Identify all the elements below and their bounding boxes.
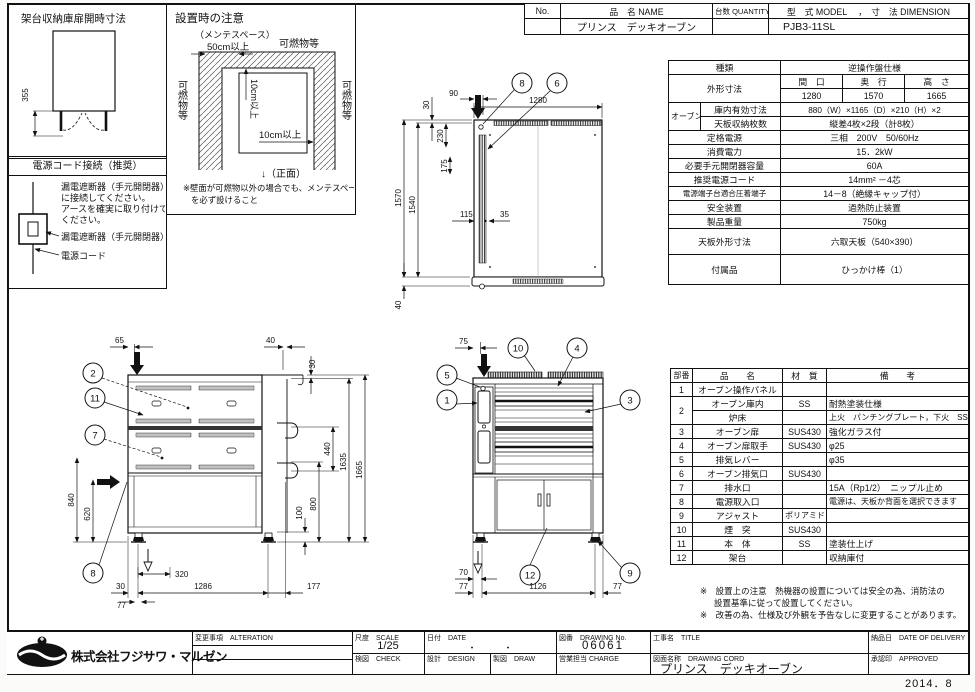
dim-rear-body-h: 1635 xyxy=(339,453,348,471)
dim-50cm: 50cm以上 xyxy=(207,42,250,53)
dim-rear-offset: 320 xyxy=(175,570,189,579)
balloon-3: 3 xyxy=(627,396,632,407)
spec-tray-value: 縦差4枚×2段（計8枚） xyxy=(781,117,969,131)
front-view-drawing: 10 4 5 1 3 12 9 75 70 77 1126 77 xyxy=(425,322,670,627)
balloon-10: 10 xyxy=(513,344,524,355)
dim-10cm-side: 10cm以上 xyxy=(249,79,259,119)
spec-accessory-value: ひっかけ棒（1） xyxy=(781,255,969,285)
header-name-label: 品 名 NAME xyxy=(561,4,713,19)
header-qty-label: 台数 QUANTITY xyxy=(713,4,769,19)
header-model-label: 型 式 MODEL ， 寸 法 DIMENSION xyxy=(769,4,969,19)
chimney-strip xyxy=(551,121,601,126)
approved-cell: 承認印 APPROVED xyxy=(868,653,968,674)
spec-w-value: 1280 xyxy=(781,89,843,103)
dim-plan-total: 1570 xyxy=(394,189,403,207)
parts-header-name: 品 名 xyxy=(693,369,783,383)
chimney-strip-left xyxy=(488,372,542,378)
power-cord-panel: 電源コード接続（推奨） 漏電遮断器（手元開閉器） に接続してください。 アースを… xyxy=(8,158,167,289)
cabinet-handle-right xyxy=(547,494,550,506)
spec-table: 種類逆操作盤仕様 外形寸法間 口奥 行高 さ 128015701665 オーブン… xyxy=(668,60,969,285)
exhaust-lever-knob xyxy=(481,386,485,390)
charge-cell: 営業担当 CHARGE xyxy=(556,653,650,674)
dim-front-foot-right: 77 xyxy=(613,582,622,591)
balloon-5: 5 xyxy=(444,371,449,382)
parts-row: 6オーブン排気口SUS430 xyxy=(671,467,969,481)
open-arrow xyxy=(144,562,152,571)
balloon-11: 11 xyxy=(90,394,100,405)
cabinet-door-diagram: 架台収納庫扉開時寸法 355 xyxy=(9,5,165,154)
power-cord-diagram: 漏電遮断器（手元開閉器） に接続してください。 アースを確実に取り付けて くださ… xyxy=(9,176,165,287)
install-note-1: ※壁面が可燃物以外の場合でも、メンテスペース xyxy=(183,183,354,193)
spec-kind-label: 種類 xyxy=(669,61,781,75)
spec-h-value: 1665 xyxy=(905,89,969,103)
caution-notes: ※ 設置上の注意 熱機器の設置については安全の為、消防法の 設置基準に従って設置… xyxy=(700,585,968,621)
dim-plan-width: 1280 xyxy=(529,96,547,105)
dim-rear-lever-gap: 440 xyxy=(323,442,332,456)
alteration-cell: 変更事項 ALTERATION xyxy=(192,632,352,645)
company-name: 株式会社フジサワ・マルゼン xyxy=(71,646,227,665)
exhaust-vent-strip xyxy=(479,135,486,263)
dim-rear-lower-h: 800 xyxy=(309,497,318,511)
power-text-2: に接続してください。 xyxy=(61,192,150,203)
parts-row: 1オーブン操作パネル xyxy=(671,383,969,397)
dim-rear-right: 177 xyxy=(307,582,321,591)
install-note-2: を必ず設けること xyxy=(191,195,258,205)
dim-rear-span: 1286 xyxy=(194,582,212,591)
published-date: 2014．8 xyxy=(905,675,953,691)
cabinet-panel-title: 架台収納庫扉開時寸法 xyxy=(21,12,126,25)
dim-rear-total-h: 1665 xyxy=(355,461,364,479)
spec-terminal-value: 14－8（絶縁キャップ付） xyxy=(781,187,969,201)
spec-d-label: 奥 行 xyxy=(843,75,905,89)
dim-rear-left-b: 620 xyxy=(83,507,92,521)
front-direction-label: ↓（正面） xyxy=(261,168,306,180)
cabinet-handle-left xyxy=(538,494,541,506)
spec-h-label: 高 さ xyxy=(905,75,969,89)
dim-plan-entry: 90 xyxy=(449,89,458,98)
check-cell: 検図 CHECK xyxy=(352,653,424,674)
dim-plan-top: 30 xyxy=(422,100,431,109)
parts-row: 7排水口15A（Rp1/2） ニップル止め xyxy=(671,481,969,495)
spec-tray-label: 天板収納枚数 xyxy=(701,117,781,131)
control-panel-lower xyxy=(478,431,490,463)
spec-weight-label: 製品重量 xyxy=(669,215,781,229)
deck-divider-front xyxy=(495,426,593,431)
rear-entry-arrow xyxy=(130,352,144,375)
design-cell: 設計 DESIGN xyxy=(424,653,490,674)
spec-cord-label: 推奨電源コード xyxy=(669,173,781,187)
dim-plan-vent-offset: 230 xyxy=(436,129,445,143)
dim-front-foot-left: 77 xyxy=(459,582,468,591)
header-table: No. 品 名 NAME 台数 QUANTITY 型 式 MODEL ， 寸 法… xyxy=(524,3,969,35)
spec-d-value: 1570 xyxy=(843,89,905,103)
control-panel-upper xyxy=(478,391,490,423)
parts-row: 9アジャストポリアミド xyxy=(671,509,969,523)
spec-outer-label: 外形寸法 xyxy=(669,75,781,103)
dim-rear-plate: 30 xyxy=(308,359,317,368)
door-swing-arc-left xyxy=(63,113,82,130)
note-1a: ※ 設置上の注意 熱機器の設置については安全の為、消防法の xyxy=(700,585,968,597)
balloon-1: 1 xyxy=(444,396,449,407)
parts-row: 炉床上火 パンチングプレート，下火 SS xyxy=(671,411,969,425)
installation-caution-panel: 設置時の注意 （メンテスペース） 50cm以上 可燃物等 10cm以上 10cm… xyxy=(166,4,356,215)
balloon-2: 2 xyxy=(90,369,95,380)
install-panel-title: 設置時の注意 xyxy=(175,11,244,25)
note-1b: 設置基準に従って設置してください。 xyxy=(700,597,968,609)
balloon-8b: 8 xyxy=(90,569,95,580)
door-swing-arc-right xyxy=(85,113,104,130)
header-no-label: No. xyxy=(525,4,561,19)
title-cell: 工事名 TITLE xyxy=(650,632,868,653)
dim-rear-foot: 77 xyxy=(117,601,126,610)
spec-consumption-value: 15．2kW xyxy=(781,145,969,159)
dim-plan-body: 1540 xyxy=(408,196,417,214)
dim-front-gap: 70 xyxy=(459,568,468,577)
company-logo-icon xyxy=(11,632,73,674)
draw-cell: 製図 DRAW xyxy=(490,653,556,674)
rear-view-drawing: 2 11 7 8 65 40 30 840 620 440 800 100 16… xyxy=(15,322,375,627)
dim-plan-side: 115 xyxy=(460,210,473,219)
spec-weight-value: 750kg xyxy=(781,215,969,229)
parts-header-material: 材 質 xyxy=(783,369,827,383)
flammable-right-label: 可燃物等 xyxy=(340,80,352,120)
parts-header-no: 部番 xyxy=(671,369,693,383)
dim-front-top: 75 xyxy=(459,337,468,346)
balloon-12: 12 xyxy=(525,571,536,582)
breaker-label: 漏電遮断器（手元開閉器） xyxy=(61,231,165,242)
model-value: PJB3-11SL xyxy=(769,19,969,35)
parts-row: 2オーブン庫内SS耐熱塗装仕様 xyxy=(671,397,969,411)
open-arrow-front xyxy=(474,564,482,573)
dim-rear-left-a: 840 xyxy=(67,493,76,507)
spec-accessory-label: 付属品 xyxy=(669,255,781,285)
power-panel-title: 電源コード接続（推奨） xyxy=(9,159,166,176)
cord-label: 電源コード xyxy=(61,251,106,261)
company-cell: 株式会社フジサワ・マルゼン xyxy=(7,632,192,674)
power-text-1: 漏電遮断器（手元開閉器） xyxy=(61,181,165,192)
parts-table: 部番 品 名 材 質 備 考 1オーブン操作パネル 2オーブン庫内SS耐熱塗装仕… xyxy=(670,368,969,565)
dim-plan-front: 40 xyxy=(394,300,403,309)
dim-plan-vent-w: 35 xyxy=(500,210,509,219)
balloon-4: 4 xyxy=(574,344,579,355)
balloon-6: 6 xyxy=(554,79,559,90)
spec-w-label: 間 口 xyxy=(781,75,843,89)
maintenance-space-label: （メンテスペース） xyxy=(195,30,275,40)
dim-rear-edge: 30 xyxy=(116,582,125,591)
chimney-strip-right xyxy=(548,372,603,378)
spec-breaker-value: 60A xyxy=(781,159,969,173)
cabinet-door-panel: 架台収納庫扉開時寸法 355 xyxy=(8,4,167,157)
dim-rear-foot-adj: 100 xyxy=(295,506,304,520)
balloon-9: 9 xyxy=(627,569,632,580)
technical-drawing-sheet: { "header_table": { "no_label": "No.", "… xyxy=(0,0,975,692)
spec-power-value: 三相 200V 50/60Hz xyxy=(781,131,969,145)
parts-row: 4オーブン扉取手SUS430φ25 xyxy=(671,439,969,453)
spec-inner-label: 庫内有効寸法 xyxy=(701,103,781,117)
qty-value xyxy=(713,19,769,35)
dim-door-open: 355 xyxy=(21,88,30,102)
flammable-left-label: 可燃物等 xyxy=(176,80,188,120)
spec-power-label: 定格電源 xyxy=(669,131,781,145)
product-name: プリンス デッキオーブン xyxy=(561,19,713,35)
balloon-8: 8 xyxy=(519,79,524,90)
dim-front-span: 1126 xyxy=(529,582,547,591)
dim-10cm-back: 10cm以上 xyxy=(259,130,302,141)
spec-kind-value: 逆操作盤仕様 xyxy=(781,61,969,75)
power-entry-circle xyxy=(479,125,483,129)
spec-terminal-label: 電源端子台適合圧着端子 xyxy=(669,187,781,201)
dim-rear-top-right: 40 xyxy=(266,336,275,345)
spec-tray-size-label: 天板外形寸法 xyxy=(669,229,781,255)
parts-row: 3オーブン扉SUS430強化ガラス付 xyxy=(671,425,969,439)
flammable-top-label: 可燃物等 xyxy=(279,37,319,50)
scale-cell: 尺度 SCALE 1/25 xyxy=(352,632,424,653)
spec-safety-label: 安全装置 xyxy=(669,201,781,215)
deck-divider xyxy=(128,426,262,430)
rear-side-arrow xyxy=(97,475,120,489)
spec-cord-value: 14mm² －4芯 xyxy=(781,173,969,187)
spec-tray-size-value: 六取天板（540×390） xyxy=(781,229,969,255)
parts-row: 12架台収納庫付 xyxy=(671,551,969,565)
delivery-cell: 納品日 DATE OF DELIVERY xyxy=(868,632,968,653)
note-2: ※ 改善の為、仕様及び外観を予告なしに変更することがあります。 xyxy=(700,609,968,621)
power-text-4: ください。 xyxy=(61,215,106,225)
parts-row: 11本 体SS塗装仕上げ xyxy=(671,537,969,551)
spec-consumption-label: 消費電力 xyxy=(669,145,781,159)
balloon-7: 7 xyxy=(92,431,97,442)
spec-oven-label: オーブン xyxy=(669,103,701,131)
dim-rear-top-left: 65 xyxy=(115,336,124,345)
drawing-no-cell: 図番 DRAWING No. 06061 xyxy=(556,632,650,653)
parts-header-remark: 備 考 xyxy=(827,369,969,383)
installation-diagram: 設置時の注意 （メンテスペース） 50cm以上 可燃物等 10cm以上 10cm… xyxy=(167,5,354,212)
drawing-name-cell: 図面名称 DRAWING CORD プリンス デッキオーブン xyxy=(650,653,868,674)
parts-row: 10煙 突SUS430 xyxy=(671,523,969,537)
title-block: 株式会社フジサワ・マルゼン 変更事項 ALTERATION 尺度 SCALE 1… xyxy=(7,630,968,674)
power-text-3: アースを確実に取り付けて xyxy=(61,203,165,214)
parts-row: 8電源取入口電源は、天板か背面を選択できます xyxy=(671,495,969,509)
plan-view-drawing: 1280 90 8 6 1570 1540 30 230 175 115 35 … xyxy=(390,45,670,310)
spec-breaker-label: 必要手元開閉器容量 xyxy=(669,159,781,173)
chimney-strip xyxy=(494,121,548,126)
front-vent-slot xyxy=(513,279,563,284)
drain-circle xyxy=(480,284,485,289)
parts-row: 5排気レバーφ35 xyxy=(671,453,969,467)
spec-inner-value: 880（W）×1165（D）×210（H）×2 xyxy=(781,103,969,117)
spec-safety-value: 過熱防止装置 xyxy=(781,201,969,215)
dim-plan-vent-len: 175 xyxy=(440,159,449,173)
date-cell: 日付 DATE ・ ・ xyxy=(424,632,556,653)
